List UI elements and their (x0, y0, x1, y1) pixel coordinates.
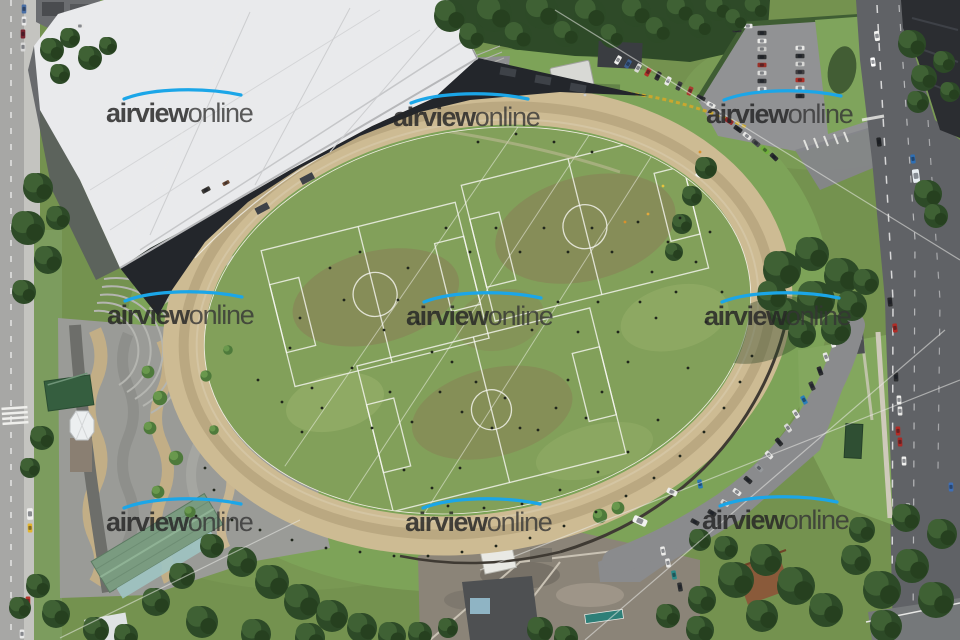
person-dot (459, 467, 462, 470)
car (796, 54, 805, 59)
tree (750, 544, 782, 576)
person-dot (529, 537, 532, 540)
tree (911, 65, 937, 91)
tree (153, 391, 167, 405)
car (28, 523, 33, 532)
person-dot (705, 321, 708, 324)
person-dot (595, 511, 598, 514)
tree (656, 604, 680, 628)
person-dot (515, 133, 518, 136)
person-dot (563, 525, 566, 528)
tree (895, 549, 929, 583)
tree (553, 21, 579, 47)
tree (142, 588, 170, 616)
car (796, 62, 805, 67)
person-dot (675, 291, 678, 294)
left-street (0, 0, 24, 640)
person-dot (383, 329, 386, 332)
car (796, 86, 805, 91)
tree (746, 600, 778, 632)
tree (821, 315, 851, 345)
car (902, 456, 907, 465)
person-dot (531, 329, 534, 332)
person-dot (567, 251, 570, 254)
person-dot (567, 379, 570, 382)
canopy-roof (44, 375, 94, 411)
tree (60, 28, 80, 48)
car (896, 426, 901, 435)
car (758, 79, 767, 84)
car (76, 24, 84, 28)
car (20, 630, 25, 639)
person-dot (204, 467, 207, 470)
car (22, 5, 27, 14)
dark-structure (597, 41, 642, 69)
green-shed (844, 424, 863, 459)
car (21, 30, 26, 39)
tree (42, 600, 70, 628)
person-dot (491, 427, 494, 430)
car (898, 406, 903, 415)
person-dot (289, 347, 292, 350)
tree (184, 506, 195, 517)
car (892, 323, 898, 332)
person-dot (657, 419, 660, 422)
person-dot (231, 519, 234, 522)
car (758, 39, 767, 44)
person-dot (585, 417, 588, 420)
person-dot (445, 227, 448, 230)
person-dot (597, 471, 600, 474)
person-dot (577, 331, 580, 334)
tree (718, 562, 754, 598)
person-dot (591, 151, 594, 154)
person-dot (679, 217, 682, 220)
person-dot (325, 547, 328, 550)
tree (927, 519, 957, 549)
car (22, 17, 27, 26)
tree (940, 82, 960, 102)
tree (853, 269, 879, 295)
person-dot (601, 391, 604, 394)
tree (26, 574, 50, 598)
person-dot (662, 185, 665, 188)
person-dot (591, 227, 594, 230)
person-dot (627, 451, 630, 454)
car (887, 297, 893, 306)
person-dot (343, 299, 346, 302)
person-dot (477, 141, 480, 144)
tree (209, 425, 219, 435)
person-dot (403, 469, 406, 472)
person-dot (559, 489, 562, 492)
car (758, 63, 767, 68)
tree (918, 582, 954, 618)
person-dot (483, 507, 486, 510)
person-dot (495, 227, 498, 230)
person-dot (351, 367, 354, 370)
tree (316, 600, 348, 632)
car (898, 437, 903, 446)
person-dot (431, 351, 434, 354)
person-dot (723, 407, 726, 410)
person-dot (393, 555, 396, 558)
tree (142, 366, 155, 379)
person-dot (411, 421, 414, 424)
tree (227, 547, 257, 577)
person-dot (647, 213, 650, 216)
person-dot (651, 271, 654, 274)
tree (757, 281, 787, 311)
car (758, 71, 767, 76)
person-dot (625, 495, 628, 498)
person-dot (461, 411, 464, 414)
tree (788, 320, 816, 348)
person-dot (195, 515, 198, 518)
tree (11, 211, 45, 245)
tree (169, 451, 183, 465)
tree (30, 426, 54, 450)
tree (78, 46, 102, 70)
tree (99, 37, 117, 55)
car (21, 43, 26, 52)
car (758, 31, 767, 36)
person-dot (703, 431, 706, 434)
tree (924, 204, 948, 228)
person-dot (417, 321, 420, 324)
person-dot (667, 241, 670, 244)
tree (797, 281, 835, 319)
person-dot (721, 291, 724, 294)
person-dot (504, 397, 507, 400)
tree (46, 206, 70, 230)
tree (725, 9, 747, 31)
person-dot (695, 261, 698, 264)
tree (612, 502, 625, 515)
person-dot (751, 355, 754, 358)
person-dot (439, 391, 442, 394)
person-dot (257, 379, 260, 382)
tree (200, 370, 211, 381)
car (27, 508, 33, 520)
tree (169, 563, 195, 589)
tree (907, 91, 929, 113)
person-dot (699, 151, 702, 154)
person-dot (329, 267, 332, 270)
tower-base (70, 438, 92, 472)
tree (892, 504, 920, 532)
person-dot (557, 301, 560, 304)
person-dot (427, 555, 430, 558)
tree (459, 23, 485, 49)
tree (144, 422, 157, 435)
tree (152, 486, 165, 499)
tree (12, 280, 36, 304)
tree (809, 593, 843, 627)
person-dot (359, 251, 362, 254)
tree (600, 24, 624, 48)
tree (898, 30, 926, 58)
tree (223, 345, 233, 355)
person-dot (495, 545, 498, 548)
tree (40, 38, 64, 62)
car (758, 47, 767, 52)
tree (200, 534, 224, 558)
person-dot (447, 505, 450, 508)
tree (672, 214, 692, 234)
person-dot (407, 267, 410, 270)
aerial-photo: airviewonline airviewonline airviewonlin… (0, 0, 960, 640)
person-dot (475, 381, 478, 384)
tree (849, 517, 875, 543)
person-dot (553, 141, 556, 144)
tree (777, 567, 815, 605)
tree (665, 243, 683, 261)
person-dot (637, 221, 640, 224)
person-dot (469, 251, 472, 254)
tree (841, 545, 871, 575)
car (796, 78, 805, 83)
car (796, 46, 805, 51)
person-dot (213, 489, 216, 492)
tree (695, 157, 717, 179)
person-dot (597, 301, 600, 304)
tree (914, 180, 942, 208)
person-dot (584, 94, 587, 97)
person-dot (624, 221, 627, 224)
person-dot (461, 551, 464, 554)
person-dot (451, 361, 454, 364)
person-dot (617, 331, 620, 334)
person-dot (655, 317, 658, 320)
car (949, 482, 954, 491)
person-dot (739, 381, 742, 384)
person-dot (679, 455, 682, 458)
tree (504, 22, 532, 50)
person-dot (611, 251, 614, 254)
person-dot (389, 391, 392, 394)
tree (186, 606, 218, 638)
person-dot (311, 387, 314, 390)
person-dot (281, 401, 284, 404)
person-dot (521, 503, 524, 506)
tree (255, 565, 289, 599)
person-dot (321, 407, 324, 410)
person-dot (543, 227, 546, 230)
person-dot (537, 429, 540, 432)
person-dot (291, 539, 294, 542)
person-dot (519, 251, 522, 254)
person-dot (519, 427, 522, 430)
car (758, 55, 767, 60)
person-dot (397, 299, 400, 302)
person-dot (687, 367, 690, 370)
tree (9, 597, 31, 619)
tree (714, 536, 738, 560)
person-dot (709, 231, 712, 234)
tree (645, 17, 671, 43)
person-dot (359, 551, 362, 554)
person-dot (371, 427, 374, 430)
tree (688, 586, 716, 614)
person-dot (259, 529, 262, 532)
car (796, 70, 805, 75)
tree (438, 618, 458, 638)
tree (688, 14, 712, 38)
person-dot (653, 477, 656, 480)
tree (20, 458, 40, 478)
tree (34, 246, 62, 274)
tree (284, 584, 320, 620)
tree (23, 173, 53, 203)
person-dot (301, 431, 304, 434)
aerial-scene (0, 0, 960, 640)
tree (682, 186, 702, 206)
car (758, 87, 767, 92)
tree (50, 64, 70, 84)
person-dot (555, 407, 558, 410)
person-dot (627, 361, 630, 364)
tree (933, 51, 955, 73)
person-dot (639, 301, 642, 304)
tree (795, 237, 829, 271)
person-dot (299, 317, 302, 320)
car (796, 94, 805, 99)
tree (863, 571, 901, 609)
person-dot (431, 487, 434, 490)
